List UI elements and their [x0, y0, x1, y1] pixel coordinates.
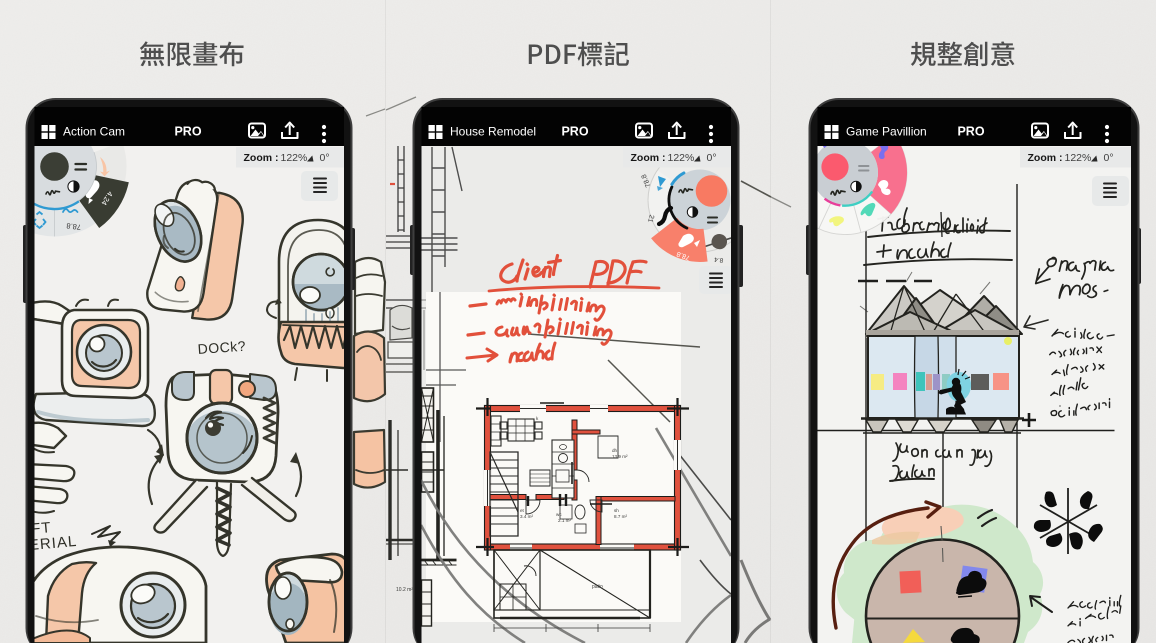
svg-text:PRO: PRO: [957, 125, 984, 139]
svg-text:122%: 122%: [281, 152, 308, 164]
svg-text:Zoom :: Zoom :: [1028, 152, 1063, 164]
svg-text:8.4: 8.4: [713, 255, 723, 263]
svg-text:dh: dh: [612, 448, 618, 453]
svg-text:House Remodel: House Remodel: [450, 125, 536, 139]
svg-text:8.7 m²: 8.7 m²: [614, 514, 627, 519]
svg-text:sh: sh: [614, 508, 619, 513]
svg-text:122%: 122%: [668, 152, 695, 164]
svg-text:3.4 m²: 3.4 m²: [520, 514, 533, 519]
svg-text:patio: patio: [592, 584, 603, 590]
svg-text:Zoom :: Zoom :: [244, 152, 279, 164]
svg-text:Zoom :: Zoom :: [631, 152, 666, 164]
svg-text:78.8: 78.8: [66, 221, 82, 232]
svg-text:0°: 0°: [1104, 152, 1114, 164]
svg-text:13.9 m²: 13.9 m²: [612, 454, 628, 459]
svg-text:Game Pavillion: Game Pavillion: [846, 125, 927, 139]
svg-text:10.2 m²: 10.2 m²: [396, 587, 413, 593]
svg-text:0°: 0°: [320, 152, 330, 164]
svg-text:DOCk?: DOCk?: [197, 338, 246, 357]
svg-text:2.1 m²: 2.1 m²: [558, 518, 571, 523]
svg-text:PRO: PRO: [561, 125, 588, 139]
svg-text:Action Cam: Action Cam: [63, 125, 125, 139]
svg-text:PRO: PRO: [174, 125, 201, 139]
svg-text:122%: 122%: [1065, 152, 1092, 164]
svg-text:0°: 0°: [707, 152, 717, 164]
svg-text:wc: wc: [556, 512, 562, 517]
